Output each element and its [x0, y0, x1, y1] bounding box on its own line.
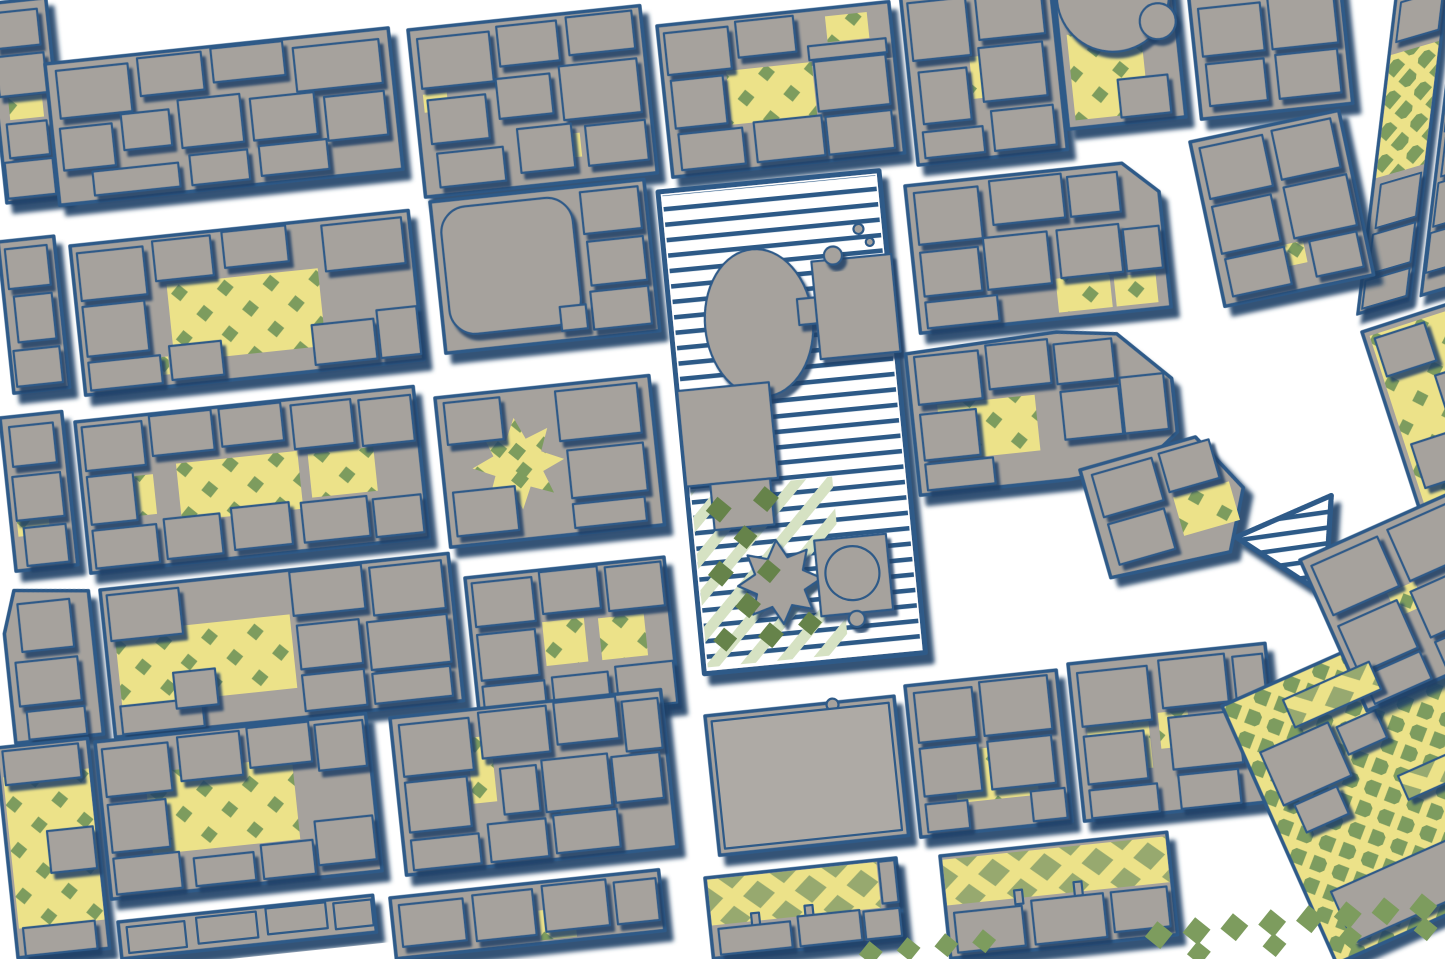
map-shape — [301, 496, 371, 543]
map-shape — [12, 472, 64, 521]
map-shape — [1119, 373, 1169, 433]
block-d4 — [905, 670, 1072, 837]
map-shape — [5, 245, 51, 289]
map-shape — [923, 126, 985, 158]
map-shape — [863, 908, 902, 940]
map-shape — [590, 286, 652, 330]
map-shape — [108, 799, 171, 853]
block-b1-courtyard — [70, 210, 424, 395]
block-d1-courtyard — [100, 553, 464, 737]
map-shape — [566, 11, 636, 56]
tree-marker — [1261, 932, 1287, 958]
map-viewport[interactable] — [0, 0, 1445, 959]
map-shape — [231, 502, 293, 550]
map-shape — [8, 95, 44, 120]
block-b2-rounded — [430, 180, 660, 354]
block-ne2 — [1190, 110, 1374, 306]
block-a4 — [900, 0, 1067, 165]
map-shape — [919, 67, 972, 124]
map-shape — [107, 588, 183, 641]
block-d3-single-building — [705, 692, 909, 855]
map-shape — [0, 9, 41, 49]
map-shape — [189, 149, 250, 185]
map-shape — [914, 186, 983, 244]
map-shape — [314, 720, 367, 771]
map-shape — [712, 703, 902, 849]
map-shape — [553, 696, 619, 744]
map-shape — [987, 735, 1056, 789]
map-shape — [1053, 338, 1115, 384]
map-shape — [1014, 890, 1023, 905]
map-shape — [611, 752, 664, 803]
map-shape — [567, 443, 648, 499]
map-shape — [250, 92, 318, 140]
tree-marker — [1181, 916, 1212, 947]
map-shape — [358, 395, 415, 446]
map-shape — [605, 561, 665, 611]
map-shape — [1118, 75, 1172, 118]
block-civic-plaza — [658, 170, 929, 673]
map-shape — [113, 852, 182, 895]
tree-marker — [1219, 912, 1250, 943]
map-shape — [677, 382, 778, 486]
map-shape — [164, 513, 224, 559]
map-shape — [989, 174, 1065, 225]
map-shape — [427, 94, 489, 144]
map-shape — [1056, 273, 1113, 312]
map-shape — [218, 402, 284, 446]
block-e1-courtyard — [95, 714, 382, 900]
map-shape — [321, 217, 405, 271]
map-shape — [477, 629, 539, 681]
map-shape — [23, 921, 98, 956]
map-shape — [754, 115, 826, 162]
map-shape — [1089, 783, 1160, 818]
map-shape — [991, 105, 1057, 151]
map-shape — [9, 423, 57, 467]
map-shape — [177, 731, 243, 781]
map-shape — [405, 776, 472, 832]
map-shape — [1067, 172, 1121, 217]
map-shape — [539, 566, 601, 614]
map-shape — [848, 610, 865, 627]
map-shape — [517, 124, 575, 173]
map-shape — [14, 293, 57, 343]
map-shape — [121, 109, 173, 150]
block-a3 — [657, 2, 905, 178]
map-shape — [983, 231, 1052, 289]
map-shape — [472, 577, 536, 627]
map-shape — [210, 41, 285, 82]
map-shape — [553, 809, 621, 853]
map-shape — [914, 687, 977, 743]
map-shape — [453, 486, 519, 536]
tree-marker — [1257, 908, 1288, 939]
map-shape — [15, 656, 81, 706]
map-shape — [496, 20, 560, 66]
map-shape — [221, 225, 288, 267]
map-shape — [82, 301, 149, 357]
block-a5-rotunda — [1049, 0, 1186, 129]
map-shape — [814, 54, 891, 111]
map-shape — [196, 912, 258, 944]
map-shape — [735, 16, 796, 58]
map-shape — [373, 494, 425, 537]
map-shape — [411, 833, 482, 870]
block-b0-sliver — [0, 236, 70, 393]
block-c2-star-court — [435, 376, 665, 548]
map-shape — [152, 235, 214, 281]
map-shape — [261, 840, 316, 879]
map-shape — [488, 818, 550, 862]
block-c0-sliver — [0, 412, 78, 572]
map-shape — [60, 123, 116, 170]
map-shape — [671, 75, 728, 128]
block-c1-courtyard — [75, 386, 429, 573]
map-shape — [259, 139, 330, 176]
block-e0-corner-park — [0, 738, 110, 957]
map-shape — [614, 878, 660, 924]
map-shape — [290, 399, 354, 449]
map-shape — [478, 706, 550, 759]
map-shape — [27, 706, 88, 740]
map-shape — [302, 669, 367, 711]
map-shape — [598, 614, 648, 661]
map-shape — [878, 860, 898, 903]
map-shape — [56, 63, 133, 118]
map-shape — [88, 355, 163, 390]
map-shape — [1267, 0, 1338, 49]
map-shape — [308, 447, 378, 498]
map-shape — [920, 409, 981, 461]
map-shape — [542, 879, 610, 931]
map-shape — [825, 12, 869, 42]
map-shape — [559, 58, 642, 120]
map-shape — [1073, 881, 1082, 896]
map-shape — [907, 0, 971, 61]
map-shape — [444, 397, 504, 445]
map-shape — [925, 457, 995, 490]
block-a6 — [1185, 0, 1353, 119]
map-shape — [472, 889, 536, 941]
map-shape — [102, 742, 173, 797]
map-shape — [376, 306, 421, 358]
map-shape — [1158, 654, 1229, 709]
block-a1 — [45, 28, 403, 205]
map-shape — [1084, 730, 1149, 784]
map-shape — [297, 619, 363, 669]
map-shape — [13, 346, 63, 387]
map-shape — [1077, 666, 1152, 727]
map-shape — [137, 52, 205, 96]
map-shape — [798, 910, 863, 946]
map-shape — [664, 27, 732, 75]
map-shape — [985, 339, 1051, 389]
map-shape — [0, 52, 48, 97]
map-shape — [178, 94, 245, 148]
map-shape — [978, 41, 1047, 101]
map-shape — [312, 319, 378, 365]
map-shape — [47, 826, 97, 873]
map-shape — [1031, 788, 1068, 821]
map-shape — [315, 815, 377, 865]
map-shape — [369, 560, 446, 615]
map-shape — [726, 62, 817, 125]
map-shape — [293, 39, 383, 92]
map-shape — [1056, 224, 1123, 278]
map-shape — [585, 120, 649, 166]
map-shape — [823, 246, 843, 266]
tree-marker — [1186, 940, 1212, 959]
map-shape — [496, 73, 554, 118]
map-shape — [1114, 272, 1159, 306]
block-b3 — [905, 160, 1171, 334]
map-shape — [399, 898, 467, 946]
map-shape — [541, 754, 612, 813]
map-shape — [399, 718, 474, 777]
map-shape — [24, 524, 70, 566]
map-shape — [925, 800, 970, 832]
map-shape — [265, 902, 327, 934]
block-e2 — [390, 690, 677, 876]
map-shape — [169, 341, 224, 380]
map-shape — [77, 246, 148, 301]
map-shape — [580, 186, 642, 234]
map-shape — [1060, 386, 1123, 440]
block-f1-sliver — [390, 870, 665, 959]
map-shape — [825, 110, 895, 155]
map-shape — [437, 147, 506, 188]
block-f0-sliver — [118, 895, 376, 959]
map-shape — [194, 852, 257, 886]
map-shape — [1123, 226, 1163, 272]
map-shape — [500, 765, 541, 815]
map-shape — [7, 120, 50, 158]
map-shape — [289, 565, 365, 616]
map-shape — [1031, 893, 1107, 944]
map-shape — [1198, 2, 1265, 56]
map-shape — [92, 524, 160, 568]
block-east-garden — [1362, 301, 1445, 513]
map-shape — [920, 247, 982, 297]
map-shape — [87, 472, 138, 525]
map-shape — [560, 304, 588, 331]
map-shape — [1178, 769, 1241, 809]
map-shape — [622, 698, 663, 751]
map-shape — [979, 675, 1052, 736]
map-shape — [82, 421, 146, 471]
map-shape — [542, 618, 588, 666]
map-shape — [1271, 118, 1340, 179]
map-shape — [149, 410, 215, 456]
map-shape — [865, 238, 874, 247]
block-a2 — [408, 6, 657, 197]
map-shape — [555, 383, 642, 441]
map-shape — [17, 599, 74, 652]
map-shape — [678, 128, 745, 170]
map-shape — [587, 236, 647, 286]
map-shape — [853, 224, 864, 235]
map-shape — [127, 921, 187, 953]
map-shape — [324, 91, 388, 141]
map-shape — [1376, 41, 1439, 178]
map-shape — [367, 614, 452, 670]
map-shape — [914, 350, 983, 404]
map-shape — [173, 668, 219, 708]
map-shape — [417, 32, 494, 89]
map-shape — [1275, 49, 1341, 99]
map-shape — [246, 722, 312, 768]
block-d0-wedge — [0, 583, 103, 743]
city-map-canvas[interactable] — [0, 0, 1445, 959]
map-shape — [974, 0, 1045, 40]
map-shape — [2, 743, 81, 785]
map-shape — [811, 254, 900, 359]
map-shape — [333, 899, 374, 929]
map-shape — [920, 743, 983, 797]
map-shape — [1206, 58, 1268, 106]
block-e3-xband — [705, 858, 904, 959]
map-shape — [5, 158, 57, 199]
